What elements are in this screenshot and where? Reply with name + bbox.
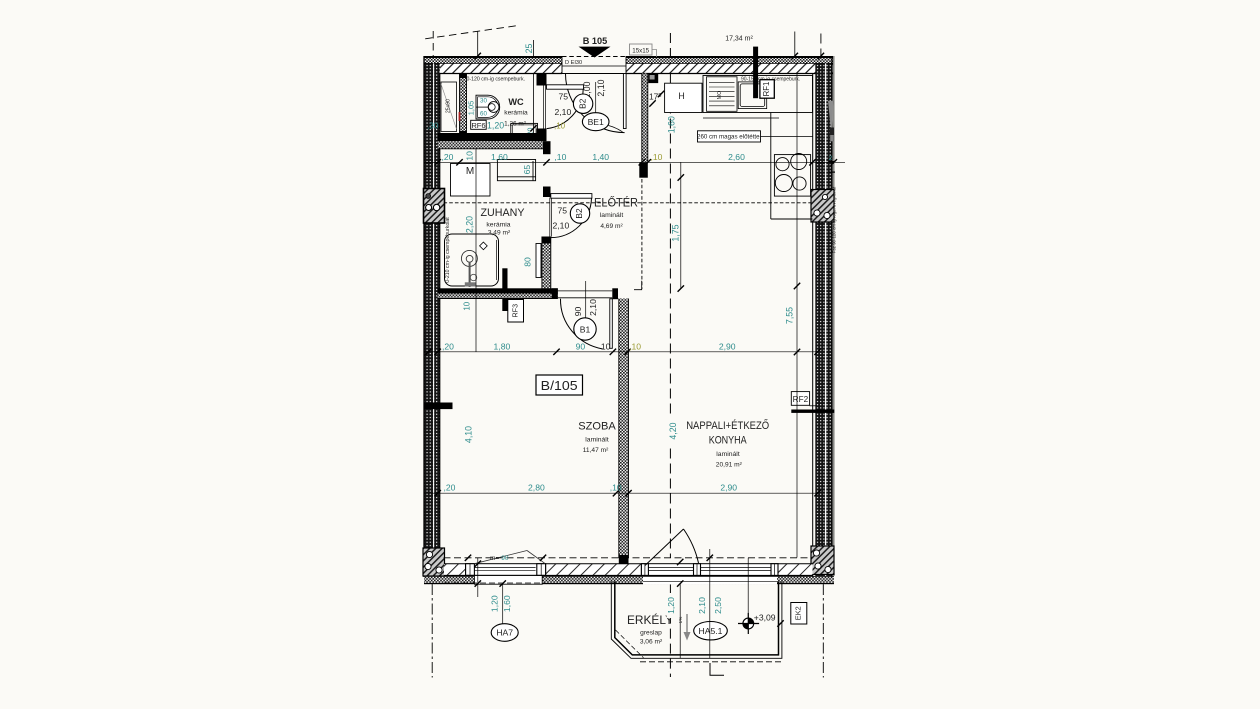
- svg-text:75: 75: [558, 206, 568, 216]
- svg-text:3,06 m²: 3,06 m²: [640, 639, 663, 646]
- svg-text:laminált: laminált: [600, 212, 624, 219]
- svg-text:B2: B2: [574, 208, 584, 219]
- svg-text:1,80: 1,80: [494, 341, 511, 351]
- svg-text:25x90: 25x90: [445, 99, 451, 113]
- svg-text:65: 65: [522, 165, 532, 175]
- svg-text:0-210 cm-ig csempeburkolat: 0-210 cm-ig csempeburkolat: [445, 217, 451, 283]
- svg-text:RF1: RF1: [762, 82, 771, 97]
- svg-text:2: 2: [829, 155, 833, 162]
- svg-text:ZUHANY: ZUHANY: [481, 207, 526, 219]
- svg-text:2,10: 2,10: [553, 221, 570, 231]
- svg-text:4,69 m²: 4,69 m²: [600, 223, 623, 230]
- svg-text:EK2: EK2: [794, 606, 803, 620]
- svg-text:B/105: B/105: [541, 378, 578, 393]
- svg-text:2,50: 2,50: [713, 597, 723, 614]
- svg-text:15x15: 15x15: [632, 47, 649, 54]
- svg-text:SZOBA: SZOBA: [578, 421, 616, 433]
- svg-text:75: 75: [559, 92, 569, 102]
- svg-text:10: 10: [464, 151, 474, 161]
- svg-text:2,10: 2,10: [596, 79, 606, 96]
- svg-text:,10: ,10: [629, 341, 641, 351]
- svg-text:1,60: 1,60: [502, 595, 512, 612]
- svg-text:M: M: [466, 166, 474, 177]
- svg-text:1,60: 1,60: [667, 116, 677, 133]
- svg-text:RF3: RF3: [511, 304, 520, 318]
- svg-text:1,05: 1,05: [466, 101, 475, 115]
- svg-text:kerámia: kerámia: [486, 222, 510, 229]
- svg-text:60: 60: [480, 111, 487, 118]
- svg-text:BE1: BE1: [588, 117, 604, 127]
- svg-text:,20: ,20: [444, 483, 456, 493]
- svg-text:HA7: HA7: [496, 628, 513, 638]
- svg-text:80: 80: [522, 257, 532, 267]
- svg-text:30: 30: [480, 97, 487, 104]
- svg-text:90: 90: [573, 307, 583, 317]
- svg-text:90: 90: [576, 341, 586, 351]
- svg-text:B1: B1: [580, 324, 591, 334]
- svg-text:kerámia: kerámia: [504, 110, 528, 117]
- svg-text:2,60: 2,60: [728, 152, 745, 162]
- svg-text:laminált: laminált: [716, 451, 740, 458]
- svg-text:m= 90: m= 90: [490, 555, 509, 562]
- svg-text:4,10: 4,10: [464, 426, 474, 443]
- svg-text:+3,09: +3,09: [754, 613, 776, 623]
- svg-text:,30: ,30: [427, 122, 439, 131]
- svg-text:B2: B2: [577, 98, 587, 109]
- svg-text:1,20: 1,20: [666, 597, 676, 614]
- svg-text:laminált: laminált: [585, 437, 609, 444]
- svg-text:3,49 m²: 3,49 m²: [488, 230, 511, 237]
- svg-text:260 cm magas előtéttel: 260 cm magas előtéttel: [697, 134, 761, 141]
- svg-text:,10: ,10: [554, 152, 566, 162]
- svg-text:1,20: 1,20: [489, 595, 499, 612]
- svg-text:7,55: 7,55: [784, 307, 794, 324]
- svg-text:RF6: RF6: [471, 121, 485, 130]
- svg-text:KONYHA: KONYHA: [709, 435, 748, 447]
- svg-text:,20: ,20: [442, 341, 454, 351]
- svg-text:0-120 cm-ig csempeburk.: 0-120 cm-ig csempeburk.: [467, 77, 526, 83]
- svg-text:B 105: B 105: [583, 36, 608, 46]
- svg-text:WC: WC: [508, 97, 524, 107]
- svg-text:,10: ,10: [610, 483, 622, 493]
- svg-text:HA5.1: HA5.1: [699, 626, 723, 636]
- svg-text:1,20: 1,20: [487, 120, 504, 130]
- svg-text:,10: ,10: [651, 152, 663, 162]
- svg-text:ELŐTÉR: ELŐTÉR: [594, 196, 638, 210]
- svg-text:2,10: 2,10: [588, 299, 598, 316]
- svg-text:,20: ,20: [442, 152, 454, 162]
- svg-text:1,75: 1,75: [670, 224, 680, 241]
- svg-text:1,60: 1,60: [491, 152, 508, 162]
- svg-text:2,90: 2,90: [720, 483, 737, 493]
- svg-text:2,20: 2,20: [465, 216, 475, 233]
- svg-text:2,10: 2,10: [697, 597, 707, 614]
- svg-text:H: H: [678, 91, 684, 101]
- svg-text:MO: MO: [717, 91, 723, 100]
- svg-text:,10: ,10: [554, 122, 566, 131]
- svg-text:RF2: RF2: [793, 395, 809, 404]
- svg-text:10: 10: [601, 341, 611, 351]
- svg-text:2,10: 2,10: [555, 107, 572, 117]
- svg-text:11,47 m²: 11,47 m²: [583, 447, 609, 454]
- svg-text:25: 25: [524, 44, 534, 54]
- svg-text:1,40: 1,40: [592, 152, 609, 162]
- svg-text:17,34 m²: 17,34 m²: [725, 36, 753, 43]
- svg-text:20,91 m²: 20,91 m²: [716, 462, 743, 469]
- svg-text:D EI30: D EI30: [565, 60, 582, 66]
- svg-text:2,90: 2,90: [719, 341, 736, 351]
- svg-text:greslap: greslap: [640, 630, 662, 637]
- svg-text:NAPPALI+ÉTKEZŐ: NAPPALI+ÉTKEZŐ: [686, 418, 769, 432]
- svg-text:4,20: 4,20: [668, 422, 678, 439]
- svg-text:10: 10: [462, 301, 471, 310]
- svg-text:2,80: 2,80: [528, 483, 545, 493]
- svg-text:ERKÉLY: ERKÉLY: [627, 614, 673, 627]
